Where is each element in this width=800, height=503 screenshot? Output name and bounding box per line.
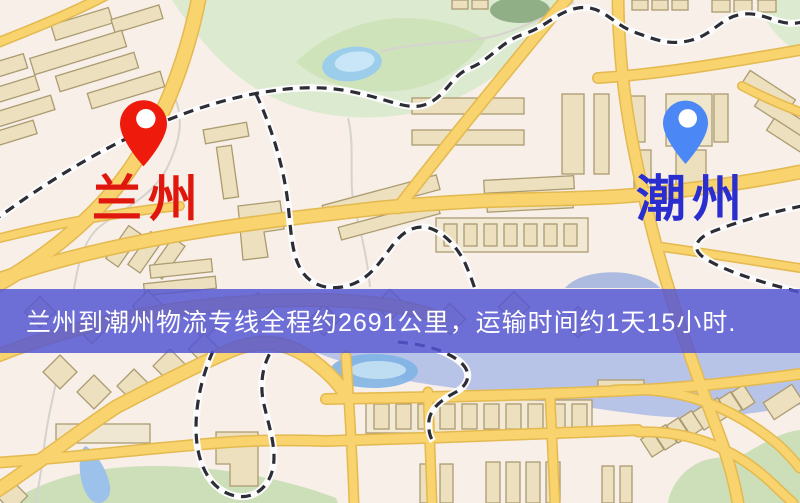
city-map-background bbox=[0, 0, 800, 503]
route-info-banner: 兰州到潮州物流专线全程约2691公里，运输时间约1天15小时. bbox=[0, 289, 800, 353]
map-image: 兰州 潮州 兰州到潮州物流专线全程约2691公里，运输时间约1天15小时. bbox=[0, 0, 800, 503]
route-info-text: 兰州到潮州物流专线全程约2691公里，运输时间约1天15小时. bbox=[26, 303, 736, 339]
origin-city-label: 兰州 bbox=[92, 174, 204, 224]
destination-city-label: 潮州 bbox=[636, 174, 748, 224]
